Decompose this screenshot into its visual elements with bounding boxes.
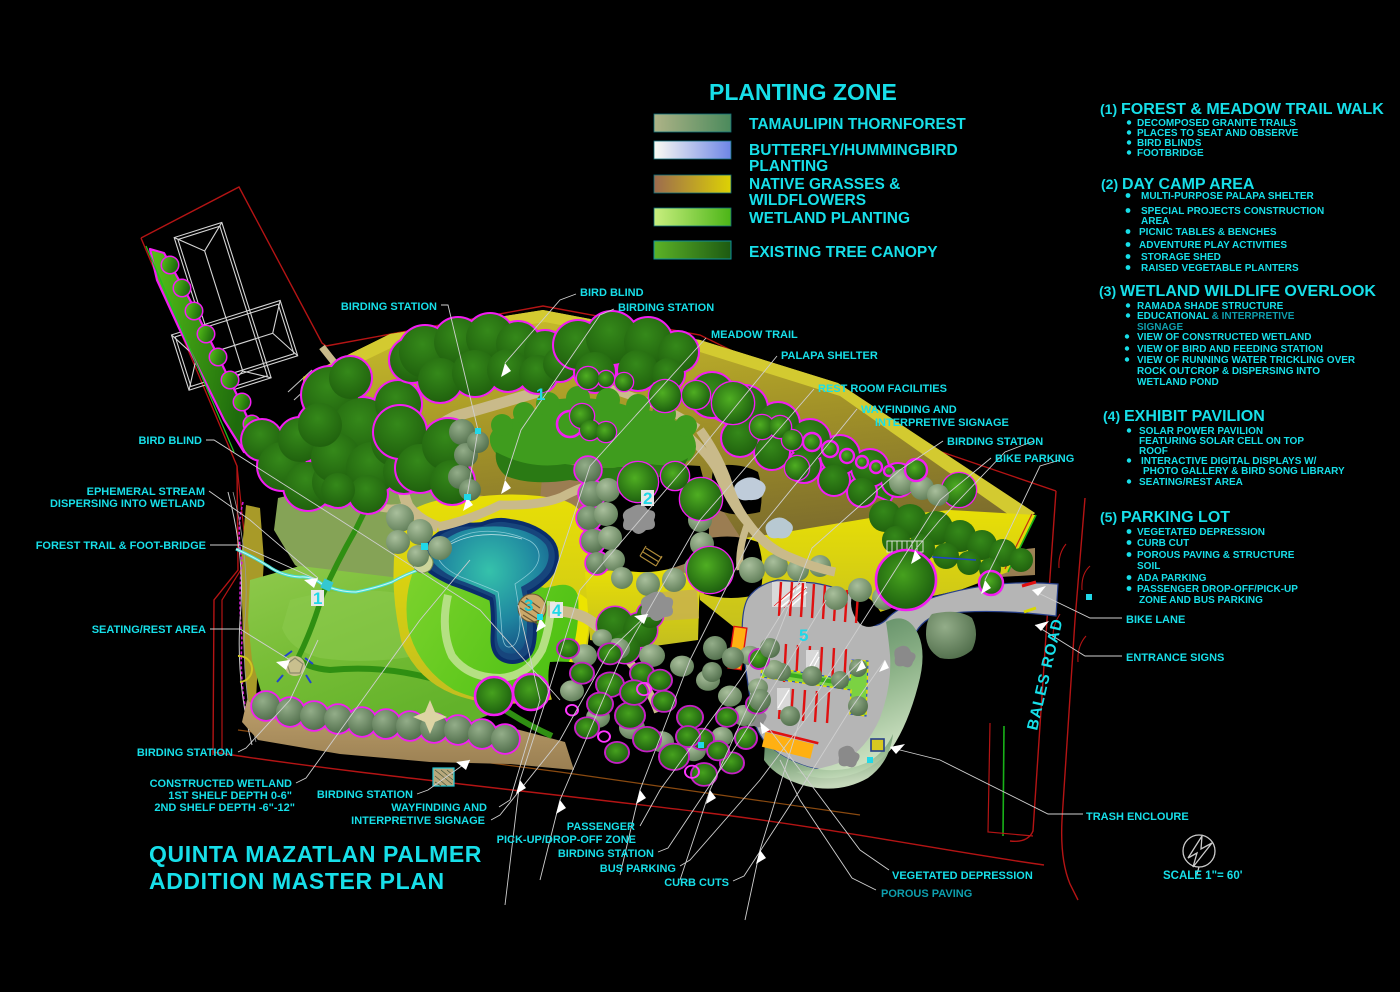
svg-text:1: 1 bbox=[313, 589, 322, 608]
svg-text:EXISTING TREE CANOPY: EXISTING TREE CANOPY bbox=[749, 244, 938, 261]
svg-text:(3) WETLAND WILDLIFE OVERLOOK: (3) WETLAND WILDLIFE OVERLOOK bbox=[1099, 283, 1376, 300]
svg-text:BIRDING STATION: BIRDING STATION bbox=[558, 848, 654, 860]
svg-text:2: 2 bbox=[643, 489, 652, 508]
svg-text:PASSENGER DROP-OFF/PICK-UP: PASSENGER DROP-OFF/PICK-UP bbox=[1137, 584, 1298, 595]
svg-text:EPHEMERAL STREAM: EPHEMERAL STREAM bbox=[87, 486, 205, 498]
svg-text:EDUCATIONAL & INTERPRETIVE: EDUCATIONAL & INTERPRETIVE bbox=[1137, 311, 1295, 322]
svg-text:BIRD BLIND: BIRD BLIND bbox=[138, 435, 202, 447]
svg-text:BIRDING STATION: BIRDING STATION bbox=[317, 789, 413, 801]
svg-text:PASSENGER: PASSENGER bbox=[567, 821, 635, 833]
svg-text:DISPERSING INTO WETLAND: DISPERSING INTO WETLAND bbox=[50, 498, 205, 510]
svg-text:VEGETATED DEPRESSION: VEGETATED DEPRESSION bbox=[892, 870, 1033, 882]
svg-text:INTERPRETIVE SIGNAGE: INTERPRETIVE SIGNAGE bbox=[351, 815, 485, 827]
svg-text:ENTRANCE SIGNS: ENTRANCE SIGNS bbox=[1126, 652, 1224, 664]
svg-text:POROUS PAVING: POROUS PAVING bbox=[881, 888, 972, 900]
svg-text:2ND SHELF DEPTH -6"-12": 2ND SHELF DEPTH -6"-12" bbox=[154, 802, 295, 814]
svg-text:TRASH ENCLOURE: TRASH ENCLOURE bbox=[1086, 811, 1189, 823]
svg-text:WILDFLOWERS: WILDFLOWERS bbox=[749, 192, 866, 209]
svg-text:PHOTO GALLERY & BIRD SONG LIB: PHOTO GALLERY & BIRD SONG LIBRARY bbox=[1143, 466, 1345, 477]
svg-text:PLANTING: PLANTING bbox=[749, 158, 828, 175]
svg-text:WAYFINDING AND: WAYFINDING AND bbox=[861, 404, 957, 416]
svg-text:(1) FOREST & MEADOW TRAIL WALK: (1) FOREST & MEADOW TRAIL WALK bbox=[1100, 101, 1384, 118]
svg-text:(4) EXHIBIT PAVILION: (4) EXHIBIT PAVILION bbox=[1103, 408, 1265, 425]
svg-text:SEATING/REST AREA: SEATING/REST AREA bbox=[92, 624, 206, 636]
svg-text:ADVENTURE PLAY ACTIVITIES: ADVENTURE PLAY ACTIVITIES bbox=[1139, 240, 1287, 251]
svg-text:1: 1 bbox=[536, 385, 545, 404]
svg-text:PALAPA SHELTER: PALAPA SHELTER bbox=[781, 350, 878, 362]
svg-text:1ST SHELF DEPTH 0-6": 1ST SHELF DEPTH 0-6" bbox=[168, 790, 292, 802]
svg-text:CURB CUTS: CURB CUTS bbox=[664, 877, 729, 889]
svg-text:CONSTRUCTED WETLAND: CONSTRUCTED WETLAND bbox=[150, 778, 292, 790]
svg-text:4: 4 bbox=[552, 601, 562, 620]
svg-text:BIKE PARKING: BIKE PARKING bbox=[995, 453, 1074, 465]
svg-text:ADDITION MASTER PLAN: ADDITION MASTER PLAN bbox=[149, 868, 445, 894]
svg-text:WETLAND POND: WETLAND POND bbox=[1137, 377, 1219, 388]
svg-text:AREA: AREA bbox=[1141, 216, 1169, 227]
svg-text:POROUS PAVING & STRUCTURE: POROUS PAVING & STRUCTURE bbox=[1137, 550, 1295, 561]
svg-text:VIEW OF RUNNING WATER TRICKLI: VIEW OF RUNNING WATER TRICKLING OVER bbox=[1137, 355, 1356, 366]
svg-text:NATIVE GRASSES &: NATIVE GRASSES & bbox=[749, 176, 900, 193]
svg-text:PLANTING ZONE: PLANTING ZONE bbox=[709, 79, 897, 105]
svg-text:INTERPRETIVE SIGNAGE: INTERPRETIVE SIGNAGE bbox=[875, 417, 1009, 429]
svg-text:BUTTERFLY/HUMMINGBIRD: BUTTERFLY/HUMMINGBIRD bbox=[749, 142, 958, 159]
svg-text:BIRDING STATION: BIRDING STATION bbox=[618, 302, 714, 314]
svg-text:3: 3 bbox=[524, 596, 533, 615]
svg-text:MULTI-PURPOSE PALAPA SHELTER: MULTI-PURPOSE PALAPA SHELTER bbox=[1141, 191, 1315, 202]
svg-text:VIEW OF BIRD AND FEEDING STATI: VIEW OF BIRD AND FEEDING STATION bbox=[1137, 344, 1323, 355]
svg-text:BIRD BLIND: BIRD BLIND bbox=[580, 287, 644, 299]
svg-text:5: 5 bbox=[799, 626, 808, 645]
svg-text:CURB CUT: CURB CUT bbox=[1137, 538, 1189, 549]
svg-text:TAMAULIPIN THORNFOREST: TAMAULIPIN THORNFOREST bbox=[749, 116, 966, 133]
svg-text:SOIL: SOIL bbox=[1137, 561, 1160, 572]
svg-text:MEADOW TRAIL: MEADOW TRAIL bbox=[711, 329, 798, 341]
svg-text:VEGETATED DEPRESSION: VEGETATED DEPRESSION bbox=[1137, 527, 1265, 538]
svg-text:STORAGE SHED: STORAGE SHED bbox=[1141, 252, 1221, 263]
svg-text:SEATING/REST AREA: SEATING/REST AREA bbox=[1139, 477, 1243, 488]
svg-text:REST ROOM FACILITIES: REST ROOM FACILITIES bbox=[818, 383, 947, 395]
svg-text:SCALE 1"= 60': SCALE 1"= 60' bbox=[1163, 870, 1243, 882]
svg-text:BUS PARKING: BUS PARKING bbox=[600, 863, 676, 875]
svg-text:RAISED VEGETABLE PLANTERS: RAISED VEGETABLE PLANTERS bbox=[1141, 263, 1299, 274]
svg-text:FOOTBRIDGE: FOOTBRIDGE bbox=[1137, 148, 1204, 159]
svg-text:FOREST TRAIL & FOOT-BRIDGE: FOREST TRAIL & FOOT-BRIDGE bbox=[36, 540, 206, 552]
svg-text:ROCK OUTCROP & DISPERSING INTO: ROCK OUTCROP & DISPERSING INTO bbox=[1137, 366, 1320, 377]
svg-text:(5) PARKING LOT: (5) PARKING LOT bbox=[1100, 509, 1230, 526]
svg-text:BIKE LANE: BIKE LANE bbox=[1126, 614, 1185, 626]
svg-text:BIRDING STATION: BIRDING STATION bbox=[341, 301, 437, 313]
svg-text:WAYFINDING AND: WAYFINDING AND bbox=[391, 802, 487, 814]
svg-text:ZONE AND BUS PARKING: ZONE AND BUS PARKING bbox=[1139, 595, 1263, 606]
svg-text:VIEW OF CONSTRUCTED WETLAND: VIEW OF CONSTRUCTED WETLAND bbox=[1137, 332, 1311, 343]
svg-text:QUINTA MAZATLAN PALMER: QUINTA MAZATLAN PALMER bbox=[149, 841, 482, 867]
svg-text:BIRDING STATION: BIRDING STATION bbox=[947, 436, 1043, 448]
svg-text:BIRDING STATION: BIRDING STATION bbox=[137, 747, 233, 759]
svg-text:ADA PARKING: ADA PARKING bbox=[1137, 573, 1207, 584]
svg-text:PICNIC TABLES & BENCHES: PICNIC TABLES & BENCHES bbox=[1139, 227, 1277, 238]
svg-text:PICK-UP/DROP-OFF ZONE: PICK-UP/DROP-OFF ZONE bbox=[497, 834, 636, 846]
svg-text:WETLAND PLANTING: WETLAND PLANTING bbox=[749, 210, 910, 227]
